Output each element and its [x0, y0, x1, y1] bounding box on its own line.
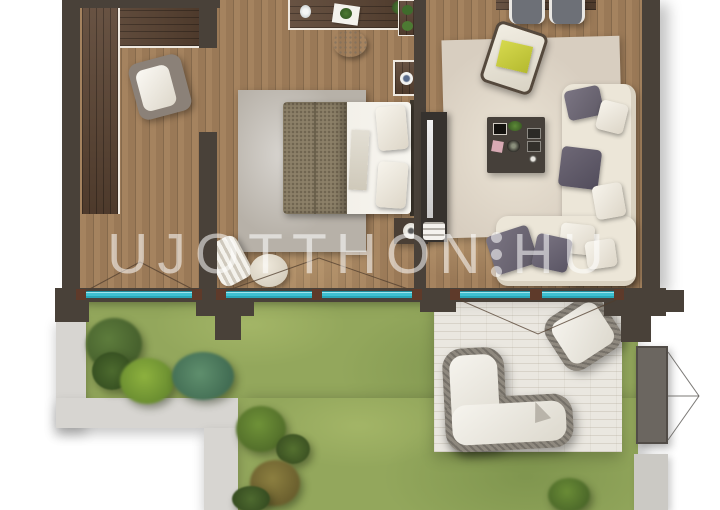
wall-top-left	[62, 0, 220, 8]
floor-plan-canvas: UJOTTHON HU	[0, 0, 720, 510]
window-frame-marker-5	[412, 289, 422, 300]
wall-left	[62, 0, 80, 290]
coffee-table-tray-1	[527, 128, 541, 139]
window-frame-marker-6	[450, 289, 460, 300]
pier-cross-left-stem	[215, 316, 241, 340]
outdoor-sofa	[441, 343, 574, 458]
wall-hall-stub-upper	[199, 0, 217, 48]
wall-hall-stub-lower	[199, 132, 217, 290]
bed-pillow-top	[375, 105, 409, 151]
wardrobe-side	[82, 8, 120, 214]
door-swing-side-gate	[668, 352, 699, 440]
coffee-table-napkin	[491, 140, 504, 153]
bush-bright-green	[120, 358, 174, 404]
window-frame-marker-2	[192, 289, 202, 300]
desk-glass	[300, 5, 311, 18]
fence-segment	[634, 454, 668, 510]
window-frame-marker-3	[216, 289, 226, 300]
shelf-plant-2	[402, 21, 413, 31]
bedroom-pouf	[333, 30, 367, 57]
bed-blanket-fold	[314, 102, 316, 214]
bed-pillow-bottom	[375, 161, 408, 209]
bed-throw	[348, 130, 369, 191]
coffee-table-plant	[508, 121, 522, 131]
side-gate	[636, 346, 668, 444]
bush-near-terrace	[548, 478, 590, 510]
window-frame-marker-7	[530, 289, 542, 300]
outdoor-sofa-cushion-horizontal	[451, 400, 567, 446]
coffee-table	[487, 117, 545, 173]
hall-armchair-cushion	[134, 63, 178, 112]
coffee-table-tray-2	[527, 141, 541, 152]
tv-screen	[427, 120, 433, 218]
terrace-door-left	[458, 291, 530, 298]
dining-chair-left	[509, 0, 545, 24]
side-table-cup	[400, 72, 413, 85]
tv-speaker	[423, 222, 445, 240]
palm-plant-mid	[276, 434, 310, 464]
sofa-pillow-7	[531, 233, 573, 274]
sofa-pillow-8	[584, 238, 618, 270]
window-hall	[84, 291, 196, 298]
window-frame-marker-4	[312, 289, 322, 300]
floor-cushion	[250, 254, 288, 287]
bush-teal-green	[172, 352, 234, 400]
pier-cross-right-arm	[660, 290, 684, 312]
window-frame-marker-1	[76, 289, 86, 300]
window-bedroom-right	[322, 291, 416, 298]
shelf-plant	[402, 5, 413, 15]
desk-plant-small	[340, 8, 352, 19]
coffee-table-centerpiece	[507, 140, 520, 152]
terrace-door-right	[542, 291, 618, 298]
wall-right	[642, 0, 660, 290]
palm-plant-bottom	[232, 486, 270, 510]
coffee-table-cup	[529, 155, 537, 163]
coffee-table-book	[493, 123, 507, 135]
pier-cross-right-stem	[621, 316, 651, 342]
dining-chair-right	[549, 0, 585, 24]
sofa-pillow-3	[558, 146, 603, 191]
sofa-pillow-4	[591, 182, 626, 221]
window-frame-marker-8	[614, 289, 624, 300]
tv-media-unit	[421, 112, 447, 242]
window-bedroom-left	[224, 291, 314, 298]
